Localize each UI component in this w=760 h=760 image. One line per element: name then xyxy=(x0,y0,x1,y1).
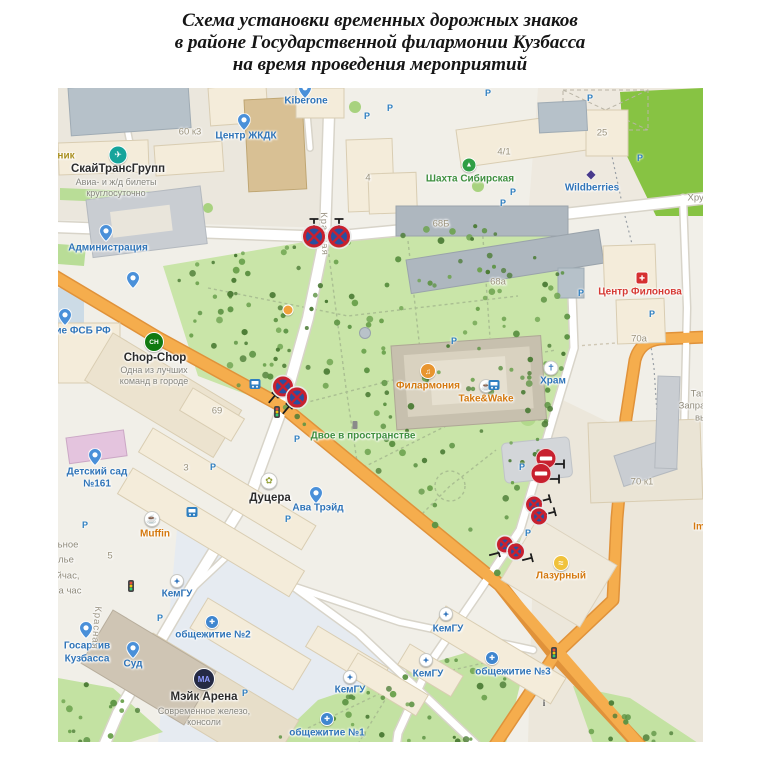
map-label-авиа-и-ж-д-билеты: Авиа- и ж/д билеты xyxy=(76,177,157,187)
kemgu-icon[interactable]: ✦ xyxy=(170,574,184,588)
title-line-1: Схема установки временных дорожных знако… xyxy=(0,10,760,32)
parking-icon[interactable]: P xyxy=(637,153,643,163)
map-label-общежитие-1[interactable]: общежитие №1 xyxy=(289,728,364,739)
map-label-69: 69 xyxy=(212,406,223,417)
administracia-pin[interactable] xyxy=(100,225,113,242)
no-stopping-sign xyxy=(529,507,549,532)
map-label-5: 5 xyxy=(107,551,112,562)
map-label-вь: вь xyxy=(695,413,703,424)
map-label-общежитие-3[interactable]: общежитие №3 xyxy=(475,667,550,678)
map-label-ник: ник xyxy=(58,151,75,162)
map-label-центр-филонова[interactable]: Центр Филонова xyxy=(598,287,682,298)
shahta-sibirskaya-icon[interactable]: ▲ xyxy=(462,158,477,173)
map-label-современное-железо: Современное железо, xyxy=(158,706,250,716)
map-label-25: 25 xyxy=(597,128,608,139)
map-label-im[interactable]: Im xyxy=(693,522,703,533)
map-label-4-1: 4/1 xyxy=(497,147,510,158)
parking-icon[interactable]: P xyxy=(157,613,163,623)
map-overlay-layer: KiberoneЦентр ЖКДКАдминистрацияние ФСБ Р… xyxy=(58,88,703,742)
no-stopping-sign xyxy=(285,386,309,415)
map-label-кемгу[interactable]: КемГУ xyxy=(433,624,464,635)
map-label-70а: 70а xyxy=(631,334,647,345)
map-label-take&wake[interactable]: Take&Wake xyxy=(458,394,513,405)
make-arena-icon[interactable]: МА xyxy=(193,668,215,690)
traffic-light-icon xyxy=(128,580,134,592)
map-label-филармония[interactable]: Филармония xyxy=(396,381,460,392)
chop-chop-icon[interactable]: CH xyxy=(144,332,164,352)
map-label-4: 4 xyxy=(365,173,370,184)
map-label-центр-жкдк[interactable]: Центр ЖКДК xyxy=(215,131,276,142)
parking-icon[interactable]: P xyxy=(510,187,516,197)
map-label-йчас: йчас, xyxy=(58,571,79,582)
info-icon: i xyxy=(543,698,546,708)
church-icon[interactable]: ✝ xyxy=(544,361,559,376)
lazurny-icon[interactable]: ≈ xyxy=(553,555,569,571)
map-label-администрация[interactable]: Администрация xyxy=(68,243,148,254)
parking-icon[interactable]: P xyxy=(587,93,593,103)
parking-icon[interactable]: P xyxy=(210,462,216,472)
map-label-детский-сад[interactable]: Детский сад xyxy=(67,467,128,478)
parking-icon[interactable]: P xyxy=(82,520,88,530)
sud-pin[interactable] xyxy=(127,642,140,659)
monument-icon xyxy=(353,421,358,429)
map-label-храм[interactable]: Храм xyxy=(540,376,566,387)
no-stopping-sign xyxy=(326,224,352,255)
parking-icon[interactable]: P xyxy=(242,688,248,698)
no-stopping-sign xyxy=(301,224,327,255)
map-label-ава-трэйд[interactable]: Ава Трэйд xyxy=(292,503,343,514)
map-label-68б: 68Б xyxy=(433,219,450,230)
parking-icon[interactable]: P xyxy=(387,103,393,113)
bus-stop-icon[interactable] xyxy=(489,380,500,390)
map-label-muffin[interactable]: Muffin xyxy=(140,529,170,540)
map-label-госархив[interactable]: Госархив xyxy=(64,641,110,652)
parking-icon[interactable]: P xyxy=(364,111,370,121)
map-label-хрус: Хрус xyxy=(688,193,703,204)
map-label-круглосуточно: круглосуточно xyxy=(86,188,145,198)
map-label-3: 3 xyxy=(183,463,188,474)
dorm2-icon[interactable]: ✚ xyxy=(205,615,219,629)
map-label-ьное: ьное xyxy=(58,540,78,551)
no-stopping-sign xyxy=(506,542,526,567)
parking-icon[interactable]: P xyxy=(578,288,584,298)
map-label-лье: лье xyxy=(58,555,74,566)
map-label-кемгу[interactable]: КемГУ xyxy=(335,685,366,696)
parking-icon[interactable]: P xyxy=(649,309,655,319)
map-label-тат: Тат xyxy=(691,389,703,400)
wildberries-icon[interactable]: ◆ xyxy=(586,167,595,181)
map-label-70-к1: 70 к1 xyxy=(631,477,654,488)
parking-icon[interactable]: P xyxy=(451,336,457,346)
fsb-pin[interactable] xyxy=(59,309,72,326)
map-label-шахта-сибирская[interactable]: Шахта Сибирская xyxy=(426,174,514,185)
philharmonic-icon[interactable]: ♫ xyxy=(420,363,436,379)
bus-stop-icon[interactable] xyxy=(250,379,261,389)
map-label-двое-в-пространстве[interactable]: Двое в пространстве xyxy=(311,431,416,442)
ducera-icon[interactable]: ✿ xyxy=(261,473,278,490)
parking-icon[interactable]: P xyxy=(500,198,506,208)
zhkdk-pin[interactable] xyxy=(238,114,251,131)
no-entry-sign xyxy=(529,462,553,491)
map-label-а-час: а час xyxy=(59,586,82,597)
skytransgroup-icon[interactable]: ✈ xyxy=(109,146,128,165)
parking-icon[interactable]: P xyxy=(285,514,291,524)
map-label-60-к3: 60 к3 xyxy=(179,127,202,138)
bus-stop-icon[interactable] xyxy=(187,507,198,517)
title-line-2: в районе Государственной филармонии Кузб… xyxy=(0,32,760,54)
map-container[interactable]: KiberoneЦентр ЖКДКАдминистрацияние ФСБ Р… xyxy=(58,88,703,742)
fountain-icon xyxy=(359,327,371,339)
map-label-общежитие-2[interactable]: общежитие №2 xyxy=(175,630,250,641)
ava-trade-pin[interactable] xyxy=(310,487,323,504)
parking-icon[interactable]: P xyxy=(485,88,491,98)
kemgu-icon[interactable]: ✦ xyxy=(419,653,433,667)
filonov-center-icon[interactable]: ✚ xyxy=(636,272,649,285)
map-label-суд[interactable]: Суд xyxy=(124,659,143,670)
map-label-161[interactable]: №161 xyxy=(83,479,111,490)
map-label-лазурный[interactable]: Лазурный xyxy=(536,571,586,582)
parking-icon[interactable]: P xyxy=(519,462,525,472)
poi-pin[interactable] xyxy=(127,272,140,289)
map-label-одна-из-лучших: Одна из лучших xyxy=(120,365,187,375)
kemgu-icon[interactable]: ✦ xyxy=(439,607,453,621)
map-label-запра: Запра xyxy=(679,401,703,412)
page: Схема установки временных дорожных знако… xyxy=(0,0,760,760)
muffin-icon[interactable]: ☕ xyxy=(144,511,160,527)
map-label-команд-в-городе: команд в городе xyxy=(120,376,188,386)
dorm1-icon[interactable]: ✚ xyxy=(320,712,334,726)
kiberone-pin[interactable] xyxy=(299,88,312,99)
detsad-pin[interactable] xyxy=(89,449,102,466)
map-label-мэйк-арена[interactable]: Мэйк Арена xyxy=(170,691,237,703)
map-label-кемгу[interactable]: КемГУ xyxy=(162,589,193,600)
poi-dot-icon xyxy=(283,305,294,316)
gosarhiv-pin[interactable] xyxy=(80,622,93,639)
kemgu-icon[interactable]: ✦ xyxy=(343,670,357,684)
map-label-кемгу[interactable]: КемГУ xyxy=(413,669,444,680)
traffic-light-icon xyxy=(551,647,557,659)
map-label-кузбасса[interactable]: Кузбасса xyxy=(65,654,110,665)
map-label-wildberries[interactable]: Wildberries xyxy=(565,183,619,194)
map-label-chop-chop[interactable]: Chop-Chop xyxy=(124,352,187,364)
parking-icon[interactable]: P xyxy=(294,434,300,444)
map-label-консоли: консоли xyxy=(187,717,221,727)
map-label-ние-фсб-рф[interactable]: ние ФСБ РФ xyxy=(58,326,111,337)
title-line-3: на время проведения мероприятий xyxy=(0,54,760,76)
map-label-дуцера[interactable]: Дуцера xyxy=(249,492,291,504)
dorm3-icon[interactable]: ✚ xyxy=(485,651,499,665)
map-label-скайтрансгрупп[interactable]: СкайТрансГрупп xyxy=(71,163,165,175)
map-label-68а: 68а xyxy=(490,277,506,288)
page-title: Схема установки временных дорожных знако… xyxy=(0,10,760,76)
